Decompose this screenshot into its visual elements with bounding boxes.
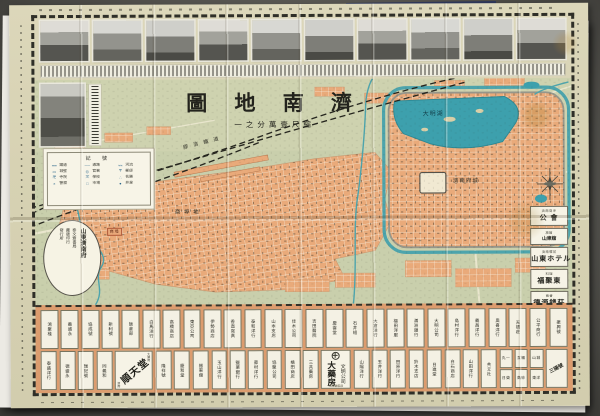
publisher-cartouche: 山東濟南府泰文齋書局藏版印行發行所 bbox=[43, 220, 101, 296]
ad-card: 東洋 bbox=[530, 369, 544, 388]
photo-captions bbox=[40, 63, 565, 78]
legend-label: 學校 bbox=[92, 175, 100, 180]
legend-label: 道路 bbox=[92, 163, 100, 168]
legend-label: 井泉 bbox=[125, 181, 133, 186]
legend-item: ━━ 鐵道 bbox=[51, 163, 81, 168]
mini-ad-grid: 丸一互福山城日榮高砂東洋 bbox=[499, 349, 543, 388]
right-margin-ticks bbox=[574, 23, 584, 390]
legend-item: 卍 寺院 bbox=[51, 175, 81, 180]
ad-name: 三陽號 bbox=[548, 362, 565, 375]
legend-item: ▭ 城壁 bbox=[51, 169, 81, 174]
ad-card: 丸一 bbox=[499, 349, 513, 368]
bw-photo bbox=[305, 20, 353, 60]
legend-symbol: ● bbox=[117, 181, 124, 185]
ad-group: 隆祥號慶和堂振東舘 bbox=[155, 351, 209, 390]
ad-card: 德盛永 bbox=[59, 351, 75, 390]
ad-card: 泰和洋行 bbox=[244, 309, 262, 348]
crest-icon bbox=[332, 352, 340, 360]
ad-group: 泰盛洋行德盛永瑞記號同義和 bbox=[41, 351, 113, 390]
district-chip: 商埠 bbox=[107, 228, 122, 236]
legend-label: 郵便 bbox=[125, 169, 133, 174]
ad-card: 互福 bbox=[514, 349, 528, 368]
map-title: 圖 地 南 濟 bbox=[184, 87, 364, 118]
right-ad-name: 山東舘 bbox=[531, 235, 567, 242]
ad-card: 慶雲堂 bbox=[325, 309, 343, 348]
cartouche-line: 藏版印行 bbox=[66, 228, 71, 288]
legend-box: 記 號 ━━ 鐵道 ── 道路 bbox=[47, 152, 151, 206]
right-ad-box: 濟南驛前 山東ホテル bbox=[530, 247, 568, 267]
top-margin-ticks bbox=[39, 7, 558, 11]
ad-card: 慶和堂 bbox=[174, 351, 190, 390]
left-margin-ticks bbox=[17, 25, 27, 392]
legend-label: 官署 bbox=[92, 169, 100, 174]
ad-card: 日進堂 bbox=[426, 350, 442, 389]
settlement-label: 商 埠 地 bbox=[175, 207, 200, 215]
ad-card: 吉田醫院 bbox=[305, 309, 323, 348]
ad-card: 山陽洋行 bbox=[354, 350, 370, 389]
legend-symbol: □ bbox=[84, 181, 91, 185]
ads-row-1: 鴻聚棧義盛永協成號新利號飯倉部白馬洋行高橋商店東亞公司伊勢商店香直寫真泰和洋行山… bbox=[40, 308, 567, 349]
cartouche-line: 山東濟南府 bbox=[78, 228, 85, 288]
bw-photo bbox=[411, 19, 459, 59]
bw-photo bbox=[517, 19, 565, 59]
ad-card: 東亞公司 bbox=[183, 309, 201, 348]
ad-card: 山本支店 bbox=[264, 309, 282, 348]
legend-label: 名勝 bbox=[125, 175, 133, 180]
ad-group: 山陽洋行玉井洋行田原洋行鈴木支店日進堂白石商店山田洋行共立社 bbox=[354, 349, 497, 388]
right-ad-name: 山東ホテル bbox=[531, 254, 567, 264]
right-ad-box: 旅館 山東舘 bbox=[530, 228, 568, 245]
ad-card: 田原洋行 bbox=[390, 350, 406, 389]
ad-card: 高砂 bbox=[514, 369, 528, 388]
legend-symbol: × bbox=[51, 182, 58, 186]
ad-card: 高橋商店 bbox=[163, 310, 181, 349]
legend-symbol: ◎ bbox=[84, 169, 91, 174]
ad-card: 橘田商店 bbox=[284, 350, 300, 389]
bw-photo bbox=[93, 21, 141, 61]
bw-photo bbox=[199, 20, 247, 60]
ad-card: 日榮 bbox=[499, 369, 513, 388]
ad-card: 協成號 bbox=[81, 310, 99, 349]
legend-symbol: ━━ bbox=[51, 163, 58, 168]
ad-card: 公平商行 bbox=[529, 308, 547, 347]
map-area: 圖 地 南 濟 一之分萬壹尺縮 記 號 ━━ 鐵道 ── bbox=[34, 78, 572, 305]
legend-label: 河流 bbox=[125, 163, 133, 168]
ad-card: 飯倉部 bbox=[122, 310, 140, 349]
legend-symbol: 文 bbox=[84, 175, 91, 180]
ad-card: 泰盛洋行 bbox=[41, 351, 57, 390]
ad-card: 義昌洋行 bbox=[468, 308, 486, 347]
legend-item: ── 道路 bbox=[84, 163, 114, 168]
ad-card: 山城 bbox=[529, 349, 543, 368]
legend-item: 文 學校 bbox=[84, 175, 114, 180]
ad-card: 瑞記號 bbox=[78, 351, 94, 390]
bw-photo bbox=[252, 20, 300, 60]
ad-group: 玉山洋行鹽業銀行藤村洋行協聚公司橘田商店三共藥房 bbox=[211, 350, 318, 389]
legend-symbol: ≈≈ bbox=[117, 163, 124, 167]
featured-ad-company: 文明公司 bbox=[340, 363, 347, 383]
right-ad-name: 福聚東 bbox=[531, 276, 567, 286]
featured-ad-bunmei-pharmacy: 文明公司 大藥房 濟南魏家莊 bbox=[321, 350, 351, 389]
legend-label: 鐵道 bbox=[59, 163, 67, 168]
legend-item: ∴ 名勝 bbox=[117, 175, 147, 180]
compass-rose-icon bbox=[537, 168, 563, 200]
photo-caption-column bbox=[88, 84, 101, 146]
ad-card: 島村洋行 bbox=[448, 308, 466, 347]
bw-photo bbox=[146, 20, 194, 60]
ad-card: 伊勢商店 bbox=[203, 309, 221, 348]
legend-item: × 警察 bbox=[51, 181, 81, 186]
legend-label: 警察 bbox=[59, 181, 67, 186]
ad-card: 白石商店 bbox=[445, 350, 461, 389]
ad-card: 山田洋行 bbox=[463, 349, 479, 388]
ads-row-2: 泰盛洋行德盛永瑞記號同義和 大藥房 順天堂 濟南 隆祥號慶和堂振東舘 玉山洋行鹽… bbox=[41, 349, 568, 390]
legend-symbol: ▭ bbox=[51, 169, 58, 174]
ad-card: 同義和 bbox=[96, 351, 112, 390]
ad-card: 大明公司 bbox=[427, 308, 445, 347]
legend-label: 城壁 bbox=[59, 169, 67, 174]
legend-symbol: 〒 bbox=[117, 169, 124, 174]
ad-card: 鹽業銀行 bbox=[230, 350, 246, 389]
legend-item: □ 市場 bbox=[84, 181, 114, 186]
right-ad-stack: 濟南商埠 公 會 旅館 山東舘 濟南驛前 山東ホテル 料理 bbox=[530, 206, 568, 305]
legend-item: 〒 郵便 bbox=[117, 169, 147, 174]
legend-symbol: ∴ bbox=[117, 175, 124, 180]
legend-label: 市場 bbox=[92, 181, 100, 186]
bw-photo-portrait bbox=[40, 84, 84, 146]
legend-item: ● 井泉 bbox=[117, 181, 147, 186]
ad-card: 鈴木支店 bbox=[408, 350, 424, 389]
ad-card: 滿洲銀行 bbox=[407, 308, 425, 347]
ad-card: 奧喜洋行 bbox=[488, 308, 506, 347]
map-sheet: 圖 地 南 濟 一之分萬壹尺縮 記 號 ━━ 鐵道 ── bbox=[9, 3, 590, 409]
ad-card: 協聚公司 bbox=[266, 350, 282, 389]
ad-card: 天德莊 bbox=[509, 308, 527, 347]
ad-card: 藤村洋行 bbox=[248, 350, 264, 389]
right-ad-name: 公 會 bbox=[531, 213, 567, 223]
featured-ad-name: 順天堂 bbox=[116, 354, 151, 387]
advertisement-section: 鴻聚棧義盛永協成號新利號飯倉部白馬洋行高橋商店東亞公司伊勢商店香直寫真泰和洋行山… bbox=[35, 303, 572, 393]
cartouche-line: 發行所 bbox=[59, 228, 64, 288]
ad-card: 石井組 bbox=[346, 309, 364, 348]
map-scale-subtitle: 一之分萬壹尺縮 bbox=[185, 119, 365, 131]
cartouche-line: 泰文齋書局 bbox=[72, 228, 77, 288]
legend-item: ≈≈ 河流 bbox=[117, 163, 147, 168]
ad-card: 共立社 bbox=[481, 349, 497, 388]
ad-card: 佳木公司 bbox=[285, 309, 303, 348]
legend-item: ◎ 官署 bbox=[84, 169, 114, 174]
bottom-margin-ticks bbox=[41, 399, 560, 403]
right-ad-box: 料理 福聚東 bbox=[530, 269, 568, 289]
ad-card: 隆祥號 bbox=[155, 351, 171, 390]
ad-card: 福田洋服 bbox=[387, 309, 405, 348]
ad-card: 白馬洋行 bbox=[142, 310, 160, 349]
rotated-ad-card: 三陽號 bbox=[546, 349, 568, 388]
legend-symbol: ── bbox=[84, 163, 91, 167]
legend-grid: ━━ 鐵道 ── 道路 ≈≈ 河流 bbox=[51, 163, 147, 186]
dashed-frame: 圖 地 南 濟 一之分萬壹尺縮 記 號 ━━ 鐵道 ── bbox=[31, 13, 576, 396]
featured-ad-small-text: 濟南 bbox=[117, 382, 121, 388]
legend-symbol: 卍 bbox=[51, 175, 58, 180]
featured-ad-juntendo: 大藥房 順天堂 濟南 bbox=[115, 351, 153, 390]
bw-photo bbox=[40, 21, 88, 61]
ad-card: 玉井洋行 bbox=[372, 350, 388, 389]
ad-card: 香直寫真 bbox=[224, 309, 242, 348]
ad-card: 振興號 bbox=[549, 308, 567, 347]
legend-title: 記 號 bbox=[51, 155, 147, 162]
map-title-block: 圖 地 南 濟 一之分萬壹尺縮 bbox=[184, 87, 364, 131]
featured-ad-address: 濟南魏家莊 bbox=[322, 383, 350, 387]
photo-strip bbox=[34, 16, 571, 63]
ad-card: 鴻聚棧 bbox=[40, 310, 58, 349]
legend-label: 寺院 bbox=[59, 175, 67, 180]
bw-photo bbox=[358, 20, 406, 60]
city-label: 濟南府城 bbox=[453, 176, 479, 184]
ad-card: 大倉洋行 bbox=[366, 309, 384, 348]
ad-card: 玉山洋行 bbox=[211, 351, 227, 390]
ad-card: 振東舘 bbox=[193, 351, 209, 390]
right-ad-box: 濟南商埠 公 會 bbox=[530, 206, 568, 226]
ad-card: 新利號 bbox=[102, 310, 120, 349]
ad-card: 義盛永 bbox=[61, 310, 79, 349]
ad-card: 三共藥房 bbox=[303, 350, 319, 389]
photograph-of-jinan-map: { "colors":{"paper":"#d7d2b3","map_green… bbox=[0, 0, 600, 416]
lake-label: 大明湖 bbox=[423, 108, 444, 117]
bw-photo bbox=[464, 19, 512, 59]
